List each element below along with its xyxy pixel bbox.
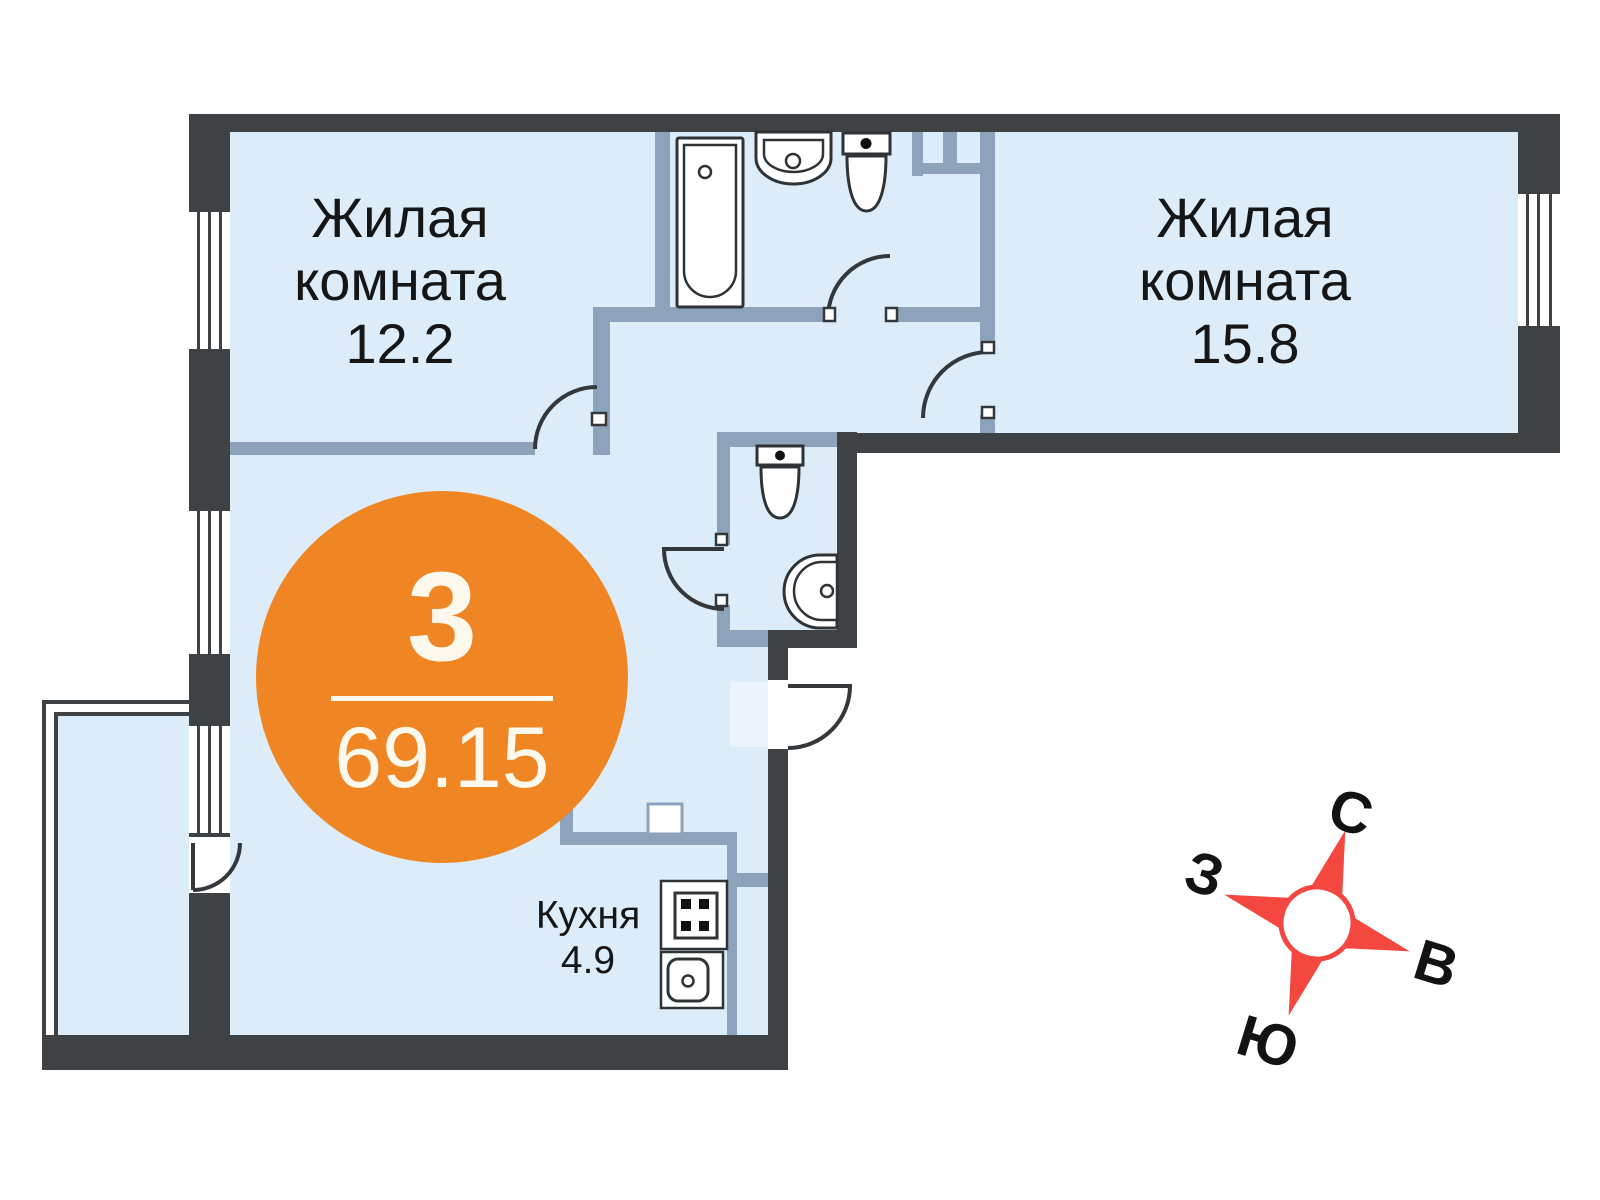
wall-segment: [655, 132, 670, 322]
bathtub-icon: [677, 138, 743, 307]
bathroom-sink-icon: [756, 132, 831, 184]
wall-segment: [837, 432, 857, 648]
wall-segment: [717, 630, 773, 647]
room-label-living2: Жилая комната 15.8: [1095, 186, 1395, 375]
area-badge: 3 69.15: [256, 491, 628, 863]
plan-canvas: С В Ю З: [0, 0, 1600, 1200]
entrance-opening: [768, 680, 788, 749]
wall-segment: [230, 442, 535, 455]
total-area: 69.15: [334, 715, 549, 801]
window: [189, 208, 230, 353]
wall-segment: [42, 1035, 788, 1070]
compass-rose: С В Ю З: [1136, 740, 1501, 1119]
balcony-door-opening: [189, 837, 230, 893]
kitchen-vent-slot: [648, 804, 682, 834]
wall-segment: [737, 873, 768, 887]
balcony-floor: [58, 716, 189, 1035]
compass-circle: [1272, 878, 1362, 968]
room-area: 12.2: [250, 312, 550, 375]
compass-north-label: С: [1321, 775, 1380, 849]
balcony-window: [189, 722, 230, 837]
compass-east-label: В: [1407, 927, 1466, 1001]
badge-divider: [331, 696, 553, 701]
wall-segment: [768, 648, 788, 682]
room-name: Жилая комната: [1095, 186, 1395, 312]
window: [189, 507, 230, 658]
compass-south-label: Ю: [1230, 1003, 1306, 1083]
room-area: 15.8: [1095, 312, 1395, 375]
wall-segment: [768, 747, 788, 1035]
wall-segment: [888, 307, 995, 322]
room-count: 3: [407, 554, 477, 680]
floor-plan: С В Ю З Жилая комната 12.2 Жилая комната…: [0, 0, 1600, 1200]
room-label-kitchen: Кухня 4.9: [438, 893, 738, 983]
compass-west-label: З: [1177, 838, 1231, 911]
wall-segment: [717, 447, 730, 545]
room-name: Кухня: [438, 893, 738, 938]
wall-segment: [593, 307, 833, 322]
wall-segment: [189, 114, 1560, 132]
window: [1518, 190, 1560, 330]
room-name: Жилая комната: [250, 186, 550, 312]
room-area: 4.9: [438, 938, 738, 983]
wall-segment: [845, 433, 1560, 453]
door-arc-entrance: [788, 686, 850, 748]
room-label-living1: Жилая комната 12.2: [250, 186, 550, 375]
wall-segment: [768, 630, 857, 648]
